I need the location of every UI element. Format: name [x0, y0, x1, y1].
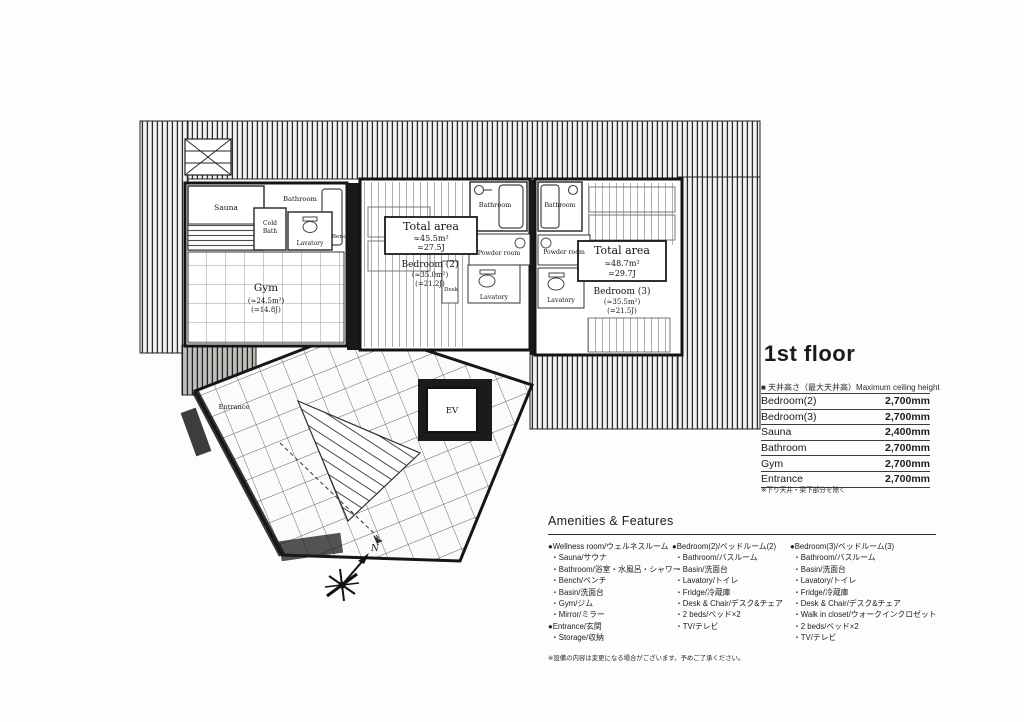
amenity-item: ・Storage/収納 — [548, 632, 672, 643]
amenity-item: ・2 beds/ベッド×2 — [790, 621, 936, 632]
elevator-label: EV — [446, 406, 459, 416]
amenities-group-heading: ●Bedroom(3)/ベッドルーム(3) — [790, 541, 936, 552]
amenities-section: Amenities & Features ●Wellness room/ウェルネ… — [548, 514, 936, 662]
toilet-tank — [303, 217, 317, 221]
amenities-column-wellness: ●Wellness room/ウェルネスルーム ・Sauna/サウナ・Bathr… — [548, 541, 672, 644]
gym-area-label: (≈24.5m²) — [248, 297, 285, 305]
bedroom2-suite: Total area ≈45.5m² =27.5J Bedroom (2) (≈… — [360, 179, 530, 350]
toilet-tank — [480, 270, 495, 274]
bedroom2-sqm: (≈35.0m²) — [412, 271, 449, 279]
amenities-list: ・Storage/収納 — [548, 632, 672, 643]
powder3-label: Powder room — [543, 249, 585, 256]
amenity-item: ・Lavatory/トイレ — [672, 575, 790, 586]
amenities-group-heading: ●Bedroom(2)/ベッドルーム(2) — [672, 541, 790, 552]
table-row: Gym 2,700mm — [761, 455, 930, 471]
lavatory2-label: Lavatory — [480, 294, 509, 301]
room-name: Bathroom — [761, 442, 807, 454]
powder2-label: Powder room — [478, 250, 521, 257]
amenity-item: ・Fridge/冷蔵庫 — [672, 587, 790, 598]
table-row: Bathroom 2,700mm — [761, 440, 930, 456]
roof-stair-bulkhead — [185, 139, 231, 175]
amenity-item: ・2 beds/ベッド×2 — [672, 609, 790, 620]
ceiling-height-value: 2,700mm — [885, 395, 930, 407]
amenities-list: ・Bathroom/バスルーム・Basin/洗面台・Lavatory/トイレ・F… — [790, 552, 936, 643]
ceiling-height-table: Bedroom(2) 2,700mm Bedroom(3) 2,700mm Sa… — [761, 393, 930, 488]
room-name: Bedroom(2) — [761, 395, 816, 407]
amenity-item: ・TV/テレビ — [790, 632, 936, 643]
amenities-column-bedroom3: ●Bedroom(3)/ベッドルーム(3) ・Bathroom/バスルーム・Ba… — [790, 541, 936, 644]
ceiling-table-header: ■ 天井高さ（最大天井高）Maximum ceiling height — [761, 382, 933, 393]
total-area-2-tatami: =27.5J — [417, 243, 445, 252]
wellness-suite: Sauna Bathroom Cold Bath Lavatory Bench … — [185, 183, 350, 346]
ceiling-height-value: 2,400mm — [885, 426, 930, 438]
table-row: Sauna 2,400mm — [761, 424, 930, 440]
total-area-3-sqm: ≈48.7m² — [604, 259, 639, 268]
total-area-2-sqm: ≈45.5m² — [413, 234, 448, 243]
page-title: 1st floor — [764, 341, 855, 367]
elevator: EV — [418, 379, 492, 441]
desk-label: Desk — [444, 287, 459, 293]
room-name: Sauna — [761, 426, 791, 438]
total-area-3-title: Total area — [594, 244, 650, 257]
amenities-columns: ●Wellness room/ウェルネスルーム ・Sauna/サウナ・Bathr… — [548, 541, 936, 644]
bedroom2-tatami: (=21.2J) — [415, 280, 445, 288]
amenity-item: ・Bathroom/バスルーム — [672, 552, 790, 563]
amenity-item: ・Bathroom/浴室・水風呂・シャワー — [548, 564, 672, 575]
total-area-3-tatami: =29.7J — [608, 269, 636, 278]
toilet-icon — [548, 278, 564, 290]
brochure-page: Entrance EV Sauna Bathroom — [0, 0, 1024, 722]
room-name: Bedroom(3) — [761, 411, 816, 423]
amenity-item: ・Walk in closet/ウォークインクロゼット — [790, 609, 936, 620]
amenity-item: ・Gym/ジム — [548, 598, 672, 609]
bedroom3-tatami: (=21.5J) — [607, 307, 637, 315]
amenities-list: ・Bathroom/バスルーム・Basin/洗面台・Lavatory/トイレ・F… — [672, 552, 790, 632]
bathroom3-label: Bathroom — [545, 202, 576, 209]
table-row: Bedroom(3) 2,700mm — [761, 409, 930, 425]
total-area-2-title: Total area — [403, 220, 459, 233]
cold-bath-label-2: Bath — [263, 228, 277, 235]
entrance-label: Entrance — [219, 403, 250, 411]
bedroom3-floor-top — [585, 183, 679, 245]
compass-north-label: N — [370, 544, 380, 554]
ceiling-table-note: ※下り天井・梁下部分を除く — [761, 484, 933, 494]
wall-corridor-left — [347, 183, 360, 350]
amenity-item: ・Basin/洗面台 — [790, 564, 936, 575]
ceiling-height-value: 2,700mm — [885, 411, 930, 423]
sauna-bench — [188, 224, 264, 250]
amenity-item: ・Basin/洗面台 — [548, 587, 672, 598]
amenities-group-heading: ●Entrance/玄関 — [548, 621, 672, 632]
bedroom3-sqm: (≈35.5m²) — [604, 298, 641, 306]
amenities-group-heading: ●Wellness room/ウェルネスルーム — [548, 541, 672, 552]
bedroom2-label: Bedroom (2) — [402, 259, 459, 270]
amenity-item: ・Lavatory/トイレ — [790, 575, 936, 586]
sauna-label: Sauna — [214, 203, 238, 212]
toilet-icon — [303, 222, 317, 233]
amenity-item: ・Desk & Chair/デスク&チェア — [790, 598, 936, 609]
lavatory3-label: Lavatory — [547, 297, 575, 304]
toilet-tank — [549, 273, 564, 277]
lavatory-wellness-label: Lavatory — [297, 240, 324, 247]
ceiling-height-value: 2,700mm — [885, 442, 930, 454]
amenities-list: ・Sauna/サウナ・Bathroom/浴室・水風呂・シャワー・Bench/ベン… — [548, 552, 672, 620]
amenity-item: ・Bathroom/バスルーム — [790, 552, 936, 563]
bathroom-wellness-label: Bathroom — [283, 195, 318, 203]
ceiling-height-value: 2,700mm — [885, 458, 930, 470]
bedroom3-floor-bottom — [588, 318, 670, 352]
bedroom3-label: Bedroom (3) — [594, 286, 651, 297]
amenity-item: ・Mirror/ミラー — [548, 609, 672, 620]
amenity-item: ・Bench/ベンチ — [548, 575, 672, 586]
gym-tatami-label: (=14.8J) — [251, 306, 281, 314]
amenity-item: ・Basin/洗面台 — [672, 564, 790, 575]
amenities-title: Amenities & Features — [548, 514, 936, 535]
amenity-item: ・Fridge/冷蔵庫 — [790, 587, 936, 598]
amenity-item: ・Desk & Chair/デスク&チェア — [672, 598, 790, 609]
amenity-item: ・Sauna/サウナ — [548, 552, 672, 563]
amenity-item: ・TV/テレビ — [672, 621, 790, 632]
room-name: Gym — [761, 458, 783, 470]
table-row: Bedroom(2) 2,700mm — [761, 393, 930, 409]
toilet-icon — [479, 275, 495, 287]
bedroom3-suite: Total area ≈48.7m² =29.7J Bedroom (3) (≈… — [535, 179, 682, 355]
bathroom2-label: Bathroom — [479, 201, 512, 209]
amenities-column-bedroom2: ●Bedroom(2)/ベッドルーム(2) ・Bathroom/バスルーム・Ba… — [672, 541, 790, 644]
amenities-note: ※設備の内容は変更になる場合がございます。予めご了承ください。 — [548, 653, 936, 662]
gym-label: Gym — [254, 282, 278, 294]
cold-bath-label-1: Cold — [263, 220, 277, 227]
